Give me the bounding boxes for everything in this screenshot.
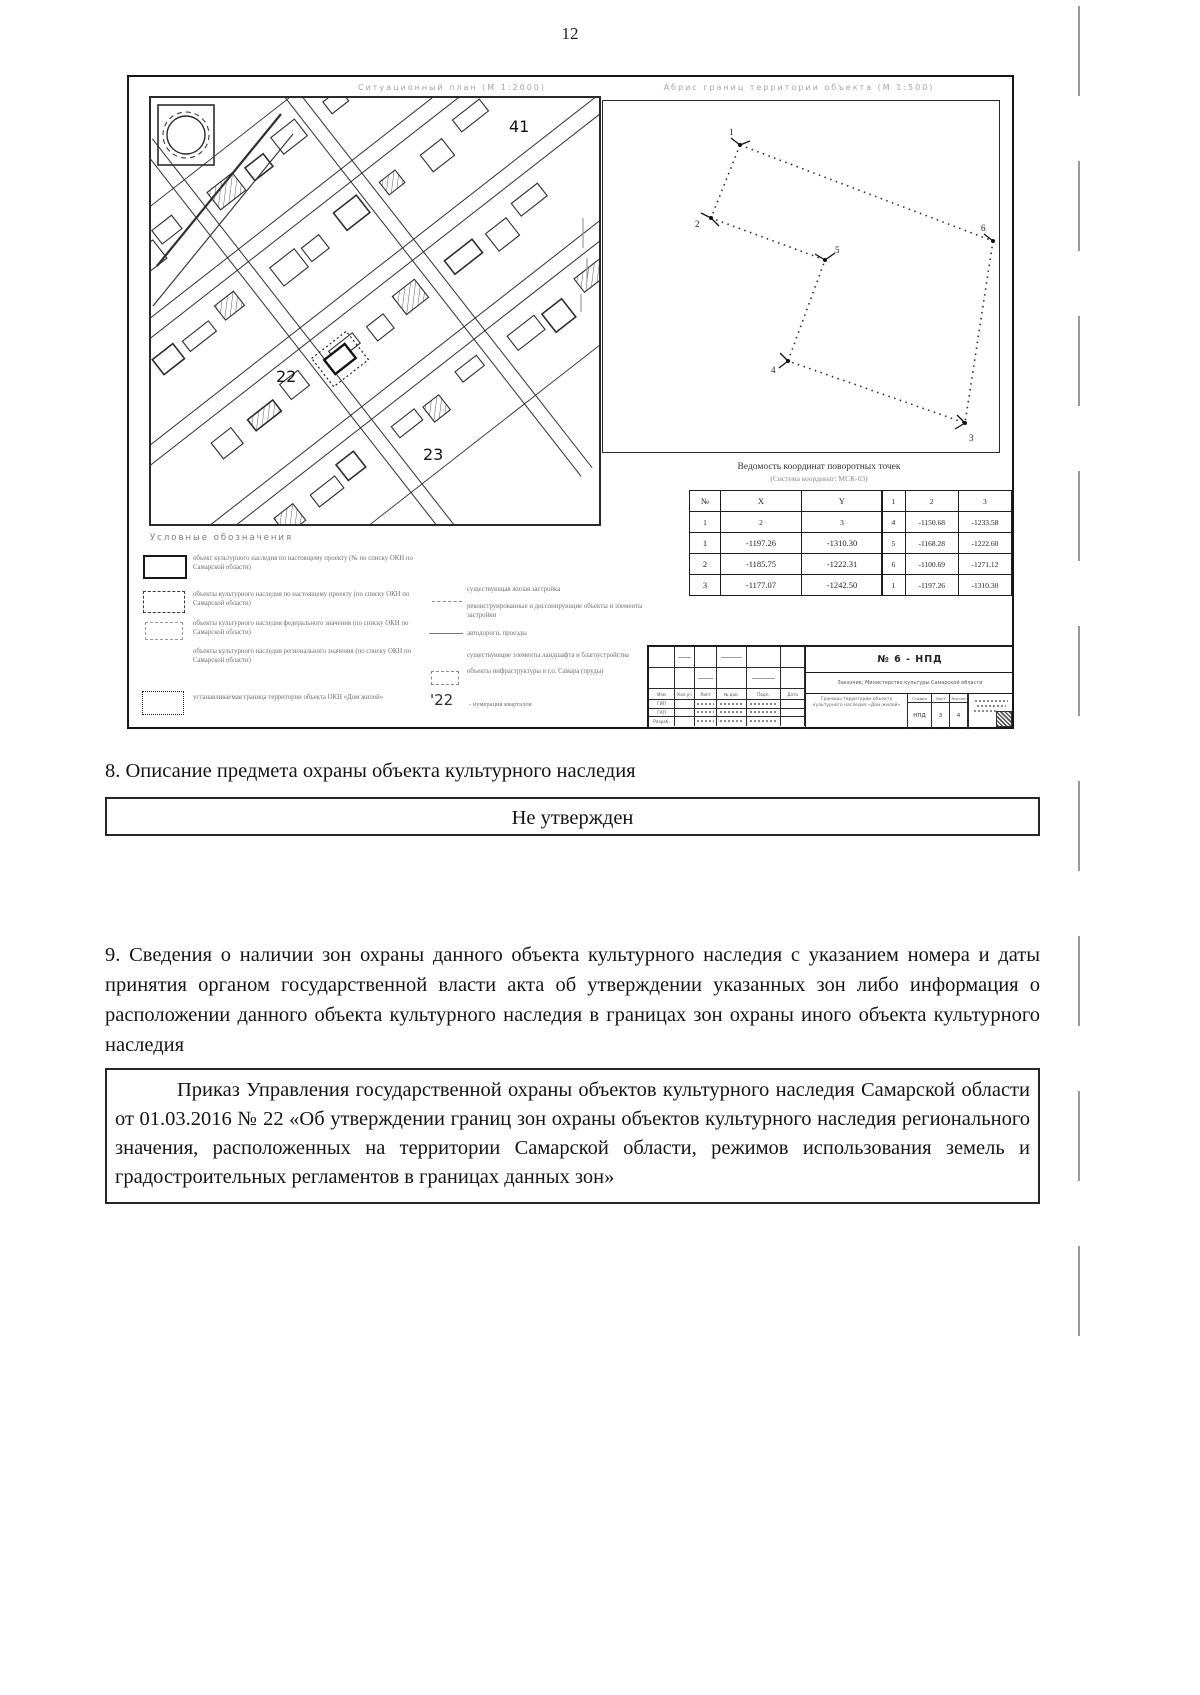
section8-value-box: Не утвержден: [105, 797, 1040, 836]
quarter-41-label: 41: [509, 117, 529, 136]
vertex-label-4: 4: [771, 365, 776, 375]
boundary-abris: 1 2 3 4 5 6: [603, 101, 999, 452]
coords-table-subtitle: (Система координат: МСК-63): [629, 474, 1009, 483]
situational-map-panel: 41 22 23: [149, 96, 601, 526]
legend-swatch-dotted: [142, 691, 184, 715]
table-row: 6 -1100.69 -1271.12: [882, 554, 1012, 575]
stamp-customer: Заказчик: Министерство культуры Самарско…: [806, 673, 1014, 694]
stamp-stage-table: Стадия Лист Листов НПД 3 4: [908, 694, 969, 729]
table-row: 1 2 3: [690, 512, 883, 533]
section9-heading: 9. Сведения о наличии зон охраны данного…: [105, 941, 1040, 1061]
section8-heading: 8. Описание предмета охраны объекта куль…: [105, 757, 1040, 787]
stamp-col-header: Кол.уч: [675, 689, 695, 699]
page-number: 12: [520, 24, 620, 44]
vertex-label-5: 5: [835, 245, 840, 255]
col-header: Y: [802, 491, 883, 512]
stamp-col-header: Лист: [695, 689, 717, 699]
legend-swatch-dashed: [143, 591, 185, 613]
col-header: №: [690, 491, 721, 512]
vertex-label-3: 3: [969, 433, 974, 443]
col-header: 3: [958, 491, 1011, 512]
col-header: X: [721, 491, 802, 512]
stamp-col-header: Подп.: [747, 689, 781, 699]
stamp-col-header: № док.: [717, 689, 747, 699]
table-row: № X Y: [690, 491, 883, 512]
table-row: 2 -1185.75 -1222.31: [690, 554, 883, 575]
section9-value-box: Приказ Управления государственной охраны…: [105, 1068, 1040, 1204]
legend-item: объект культурного наследия по настоящем…: [193, 555, 431, 573]
situational-map: 41 22 23: [151, 98, 599, 524]
quarter-22-label: 22: [276, 367, 296, 386]
legend-item: реконструированные и диссонирующие объек…: [467, 603, 645, 621]
col-header: 1: [882, 491, 906, 512]
table-row: 4 -1150.68 -1233.58: [882, 512, 1012, 533]
table-row: 5 -1168.28 -1222.60: [882, 533, 1012, 554]
figure-plan-sheet: Ситуационный план (М 1:2000) Абрис грани…: [127, 75, 1014, 729]
title-block-left-grid: Изм Кол.уч Лист № док. Подп. Дата ГИП ГА…: [649, 647, 806, 729]
legend-item: объекты культурного наследия регионально…: [193, 648, 431, 666]
legend-quarter-label: - нумерация кварталов: [469, 701, 532, 708]
legend-swatch-dashed-gray: [145, 622, 183, 640]
legend-item: устанавливаемая граница территории объек…: [193, 694, 431, 703]
stamp-doc-number: № 6 - НПД: [806, 647, 1014, 673]
table-row: 1 2 3: [882, 491, 1012, 512]
legend-item: объекты культурного наследия по настояще…: [193, 591, 431, 609]
coords-table-title: Ведомость координат поворотных точек: [629, 462, 1009, 472]
legend-quarter-number: '22: [430, 691, 453, 709]
stamp-col-header: Дата: [781, 689, 805, 699]
right-panel-header: Абрис границ территории объекта (М 1:500…: [629, 83, 969, 92]
left-panel-header: Ситуационный план (М 1:2000): [282, 83, 622, 92]
legend-item: автодороги, проезды: [467, 630, 645, 639]
stamp-role: ГИП: [649, 700, 675, 708]
stamp-organization: [969, 694, 1014, 729]
legend-item: объекты культурного наследия федеральног…: [193, 620, 431, 638]
section8-value: Не утвержден: [512, 807, 634, 829]
vertex-label-2: 2: [695, 219, 700, 229]
vertex-label-6: 6: [981, 223, 986, 233]
stamp-project-name: Границы территории объекта культурного н…: [806, 694, 908, 729]
table-row: 3 -1177.07 -1242.50: [690, 575, 883, 596]
title-block: Изм Кол.уч Лист № док. Подп. Дата ГИП ГА…: [647, 645, 1014, 729]
title-block-right: № 6 - НПД Заказчик: Министерство культур…: [806, 647, 1014, 729]
col-header: 2: [905, 491, 958, 512]
boundary-abris-panel: 1 2 3 4 5 6: [602, 100, 1000, 453]
org-logo: [996, 711, 1012, 727]
legend-mark-pond: [431, 671, 459, 685]
legend-mark-dashed: [432, 601, 462, 602]
vertex-label-1: 1: [729, 127, 734, 137]
page-fold-line: [1078, 6, 1080, 1396]
stamp-col-header: Изм: [649, 689, 675, 699]
stamp-role: ГАП: [649, 709, 675, 717]
legend-item: существующая жилая застройка: [467, 586, 645, 595]
quarter-23-label: 23: [423, 445, 443, 464]
coords-table-right: 1 2 3 4 -1150.68 -1233.58 5 -1168.28 -12…: [881, 490, 1012, 596]
coords-table-left: № X Y 1 2 3 1 -1197.26 -1310.30 2 -1185.…: [689, 490, 883, 596]
legend-item: объекты инфраструктуры в г.о. Самара (пр…: [467, 668, 645, 677]
stamp-role: Разраб.: [649, 717, 675, 726]
legend-title: Условные обозначения: [150, 533, 293, 543]
legend-swatch-solid: [143, 555, 187, 579]
section9-value: Приказ Управления государственной охраны…: [115, 1079, 1030, 1188]
table-row: 1 -1197.26 -1310.30: [882, 575, 1012, 596]
legend-mark-road: [429, 633, 463, 634]
territory-boundary-polygon: [711, 145, 993, 423]
table-row: 1 -1197.26 -1310.30: [690, 533, 883, 554]
legend-item: существующие элементы ландшафта и благоу…: [467, 652, 645, 661]
